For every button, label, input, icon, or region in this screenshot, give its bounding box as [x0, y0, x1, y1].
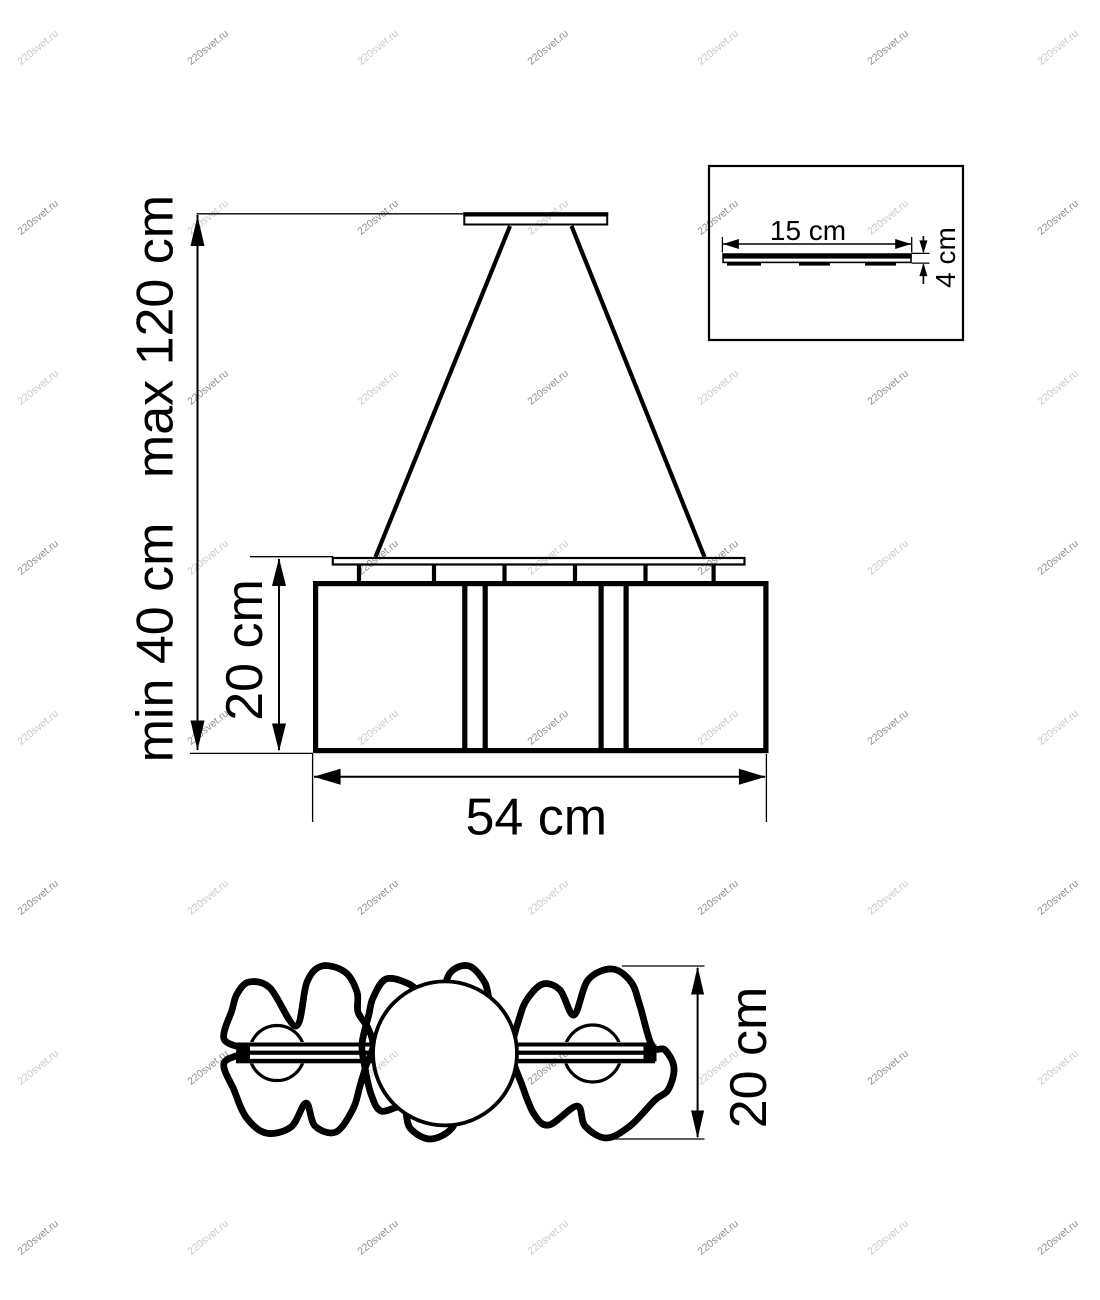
svg-text:15 cm: 15 cm	[770, 215, 846, 246]
svg-text:20 cm: 20 cm	[216, 579, 274, 721]
svg-text:54 cm: 54 cm	[465, 789, 607, 847]
svg-text:max 120 cm: max 120 cm	[127, 195, 185, 478]
svg-text:4 cm: 4 cm	[930, 227, 961, 288]
svg-text:min 40 cm: min 40 cm	[127, 523, 185, 763]
